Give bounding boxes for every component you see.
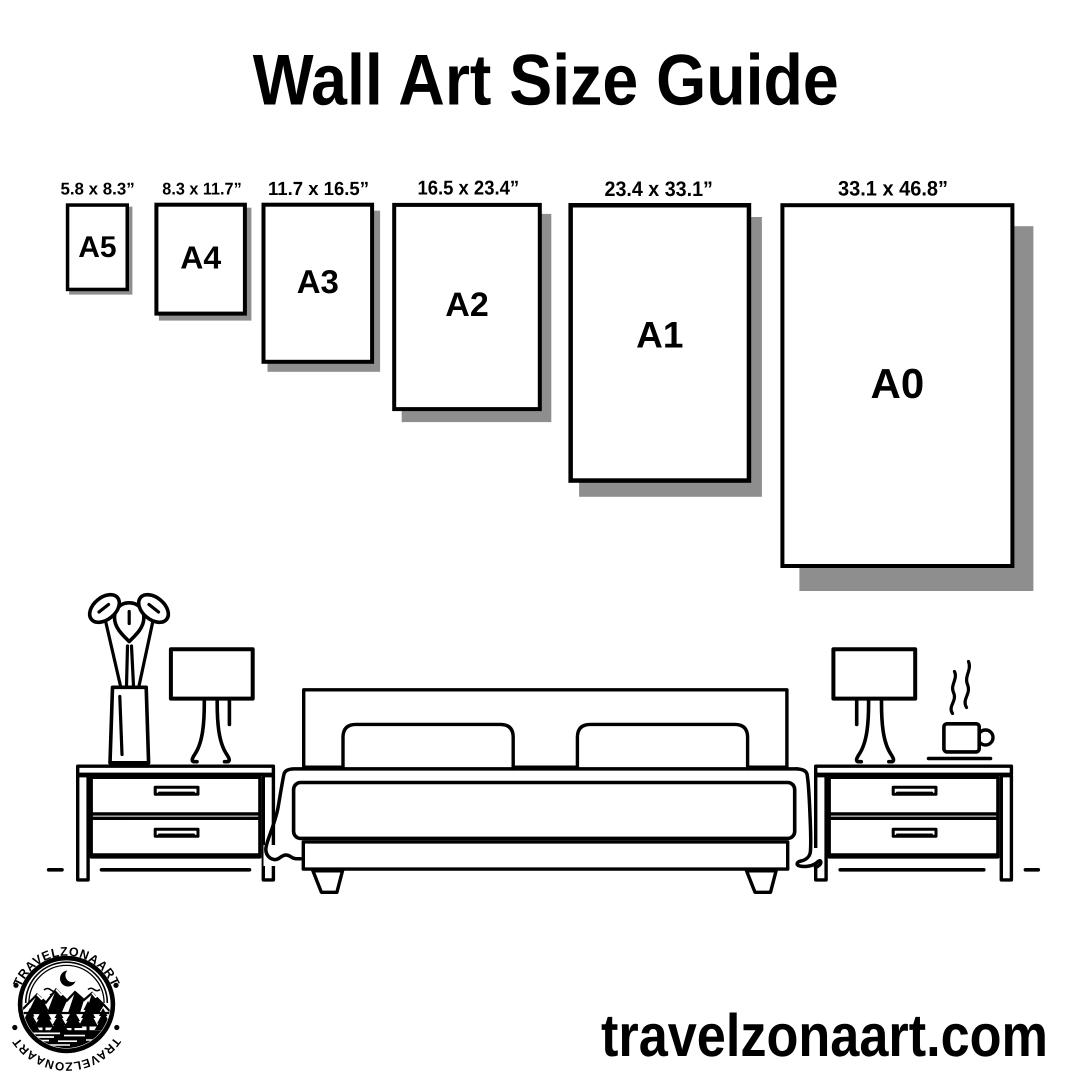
- svg-text:8.3 x 11.7”: 8.3 x 11.7”: [162, 180, 241, 199]
- svg-text:A2: A2: [445, 286, 488, 324]
- svg-text:A3: A3: [297, 263, 339, 300]
- svg-text:travelzonaart.com: travelzonaart.com: [601, 1002, 1048, 1069]
- svg-text:A0: A0: [871, 360, 925, 407]
- svg-text:Wall Art Size Guide: Wall Art Size Guide: [253, 40, 839, 120]
- svg-text:33.1 x 46.8”: 33.1 x 46.8”: [838, 178, 948, 201]
- svg-text:16.5 x 23.4”: 16.5 x 23.4”: [417, 178, 519, 200]
- svg-text:A5: A5: [78, 231, 116, 264]
- svg-text:23.4 x 33.1”: 23.4 x 33.1”: [605, 178, 713, 201]
- svg-text:A4: A4: [180, 240, 221, 276]
- svg-text:A1: A1: [636, 315, 683, 356]
- svg-text:11.7 x 16.5”: 11.7 x 16.5”: [268, 179, 369, 200]
- svg-text:5.8 x 8.3”: 5.8 x 8.3”: [60, 180, 134, 199]
